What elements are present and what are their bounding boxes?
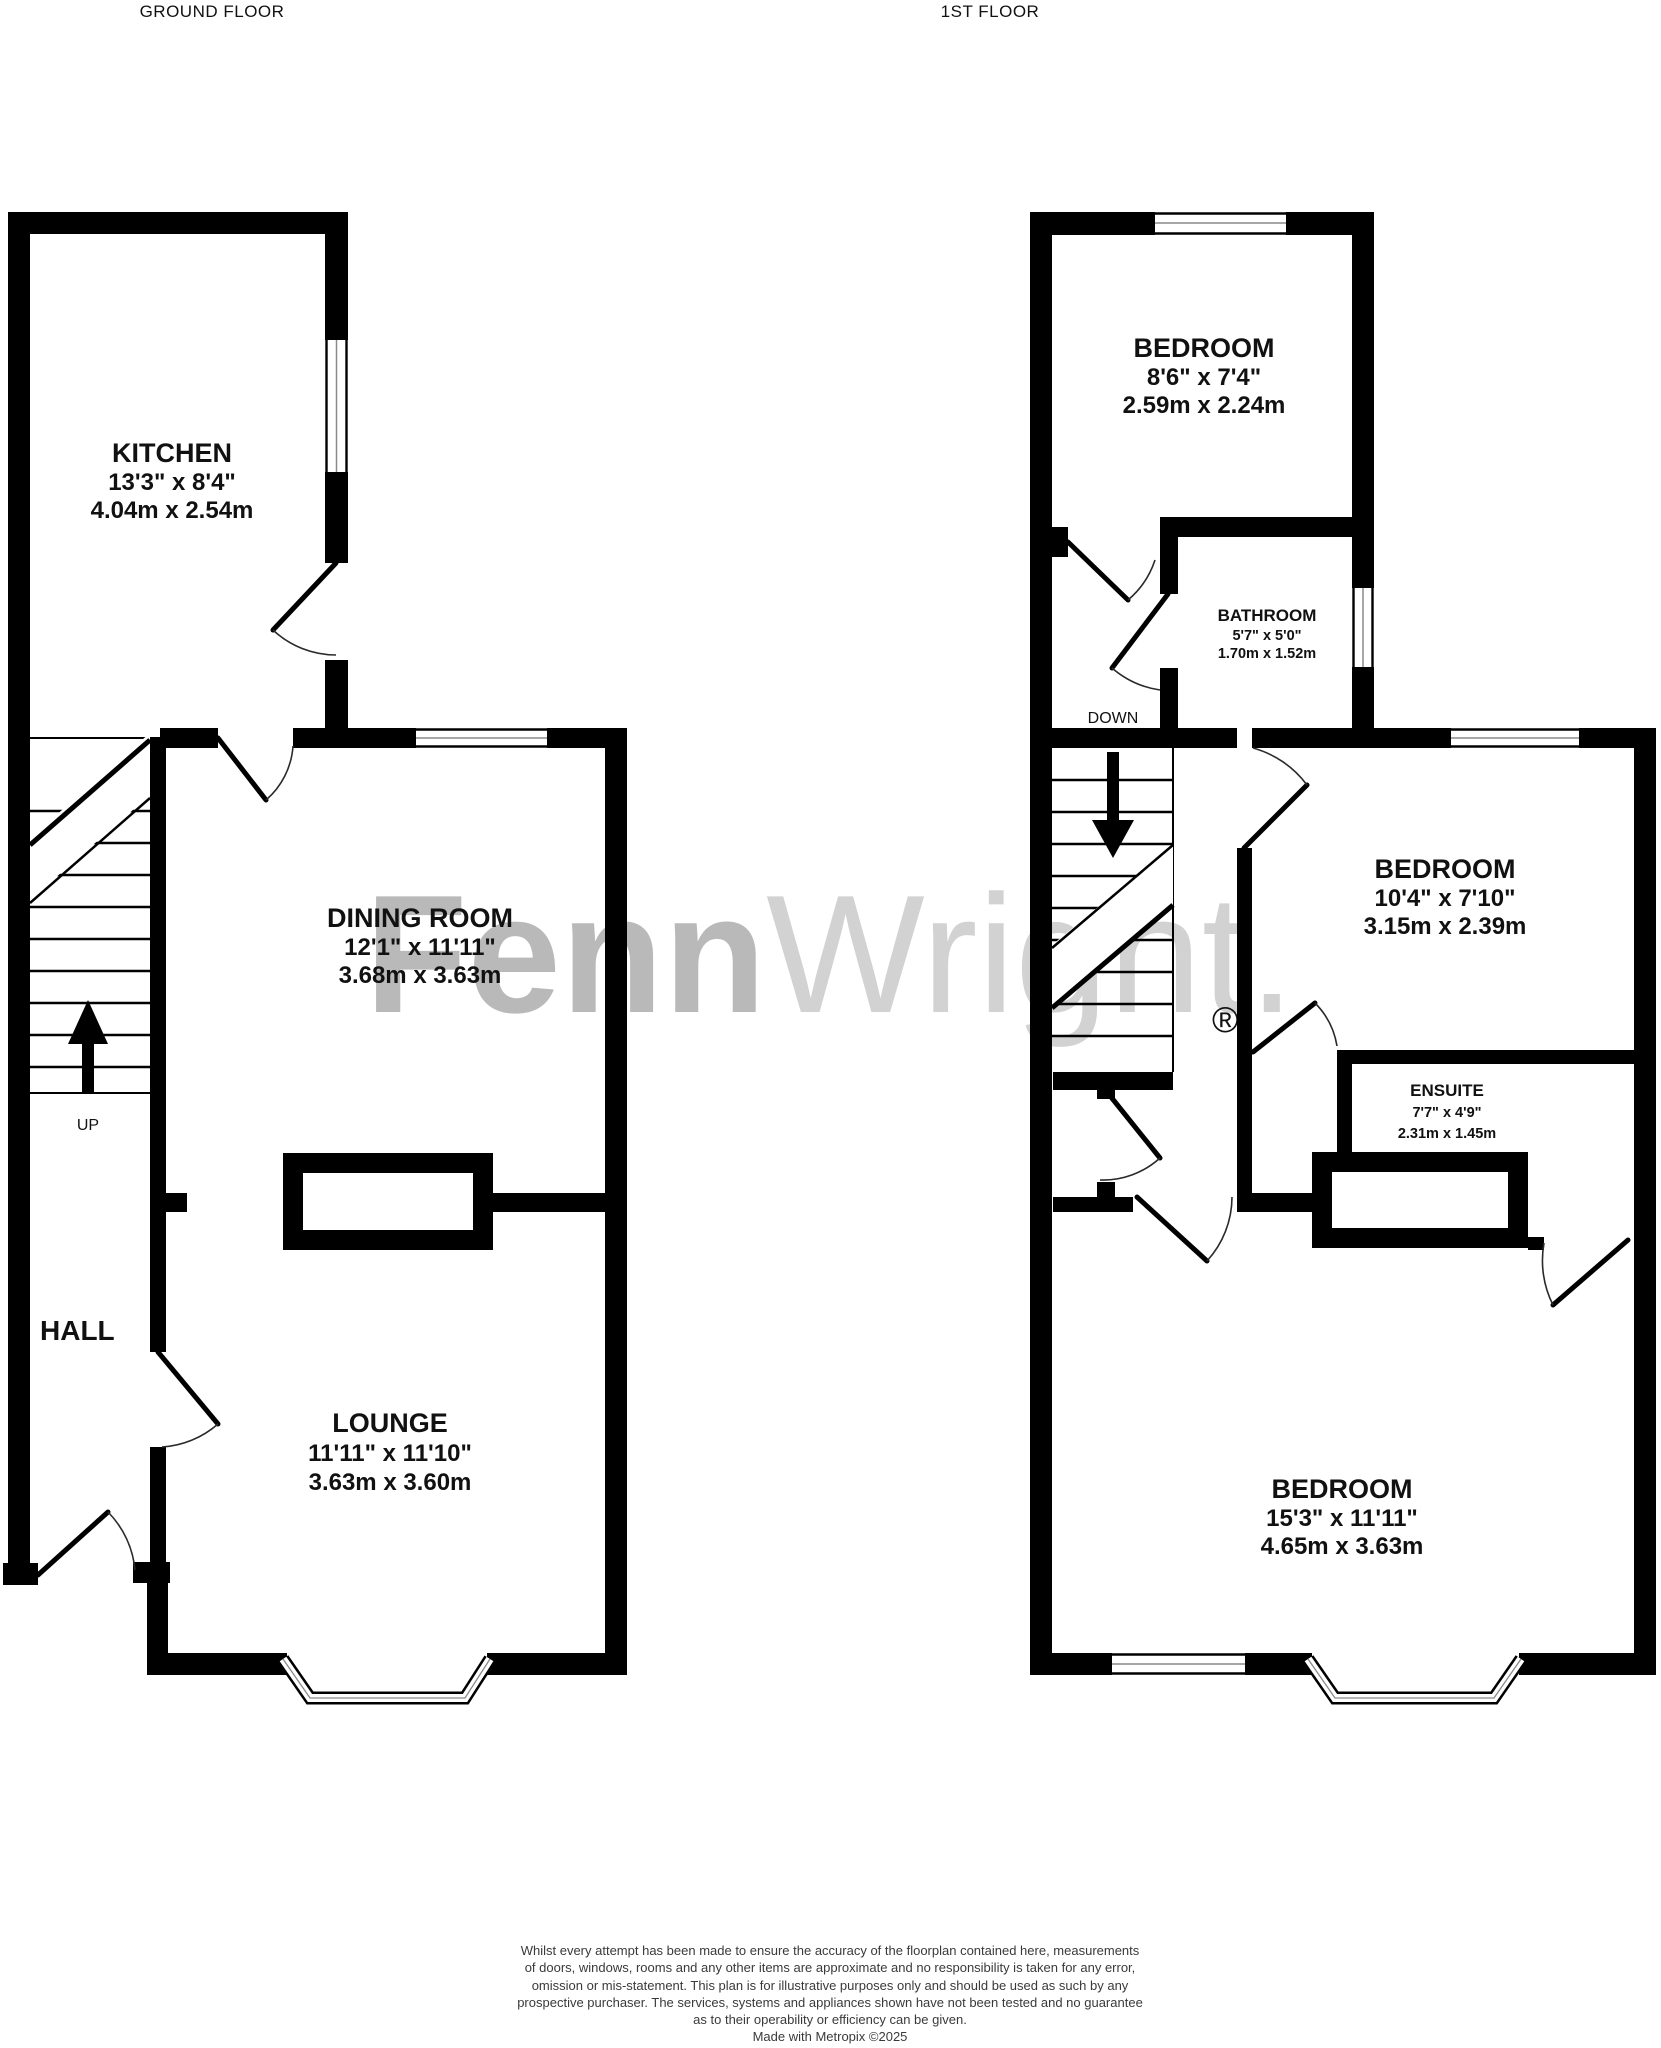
- metropix-credit: Made with Metropix ©2025: [753, 2029, 908, 2044]
- room-label-ensuite: ENSUITE 7'7" x 4'9" 2.31m x 1.45m: [1398, 1081, 1496, 1142]
- svg-text:4.04m x 2.54m: 4.04m x 2.54m: [91, 497, 254, 524]
- bedroom-front-flat-window: [1112, 1653, 1245, 1675]
- svg-text:ENSUITE: ENSUITE: [1410, 1081, 1484, 1100]
- disclaimer-line: prospective purchaser. The services, sys…: [517, 1995, 1143, 2010]
- bathroom-door: [1112, 594, 1168, 690]
- dining-room-window: [416, 728, 547, 748]
- ensuite-door: [1542, 1240, 1628, 1305]
- staircase-ground: [30, 733, 150, 1093]
- room-label-hall: HALL: [40, 1315, 115, 1346]
- svg-text:7'7" x 4'9": 7'7" x 4'9": [1412, 1105, 1481, 1121]
- disclaimer-line: omission or mis-statement. This plan is …: [532, 1978, 1129, 1993]
- room-label-kitchen: KITCHEN 13'3" x 8'4" 4.04m x 2.54m: [91, 438, 254, 524]
- up-arrow-icon: [68, 1000, 108, 1093]
- svg-text:DINING ROOM: DINING ROOM: [327, 903, 513, 933]
- bedroom-middle-door: [1244, 748, 1307, 848]
- svg-text:3.63m x 3.60m: 3.63m x 3.60m: [309, 1469, 472, 1496]
- svg-text:13'3" x 8'4": 13'3" x 8'4": [108, 469, 236, 496]
- stair-label-up: UP: [77, 1117, 99, 1134]
- lounge-door: [158, 1352, 218, 1447]
- svg-text:BEDROOM: BEDROOM: [1272, 1474, 1413, 1504]
- landing-door: [1100, 1092, 1160, 1180]
- svg-text:15'3" x 11'11": 15'3" x 11'11": [1266, 1505, 1418, 1532]
- svg-text:4.65m x 3.63m: 4.65m x 3.63m: [1261, 1533, 1424, 1560]
- registered-trademark-icon: ®: [1212, 999, 1239, 1040]
- stair-label-down: DOWN: [1088, 710, 1139, 727]
- bedroom-front-door: [1137, 1197, 1232, 1261]
- disclaimer-line: as to their operability or efficiency ca…: [693, 2012, 967, 2027]
- room-label-lounge: LOUNGE 11'11" x 11'10" 3.63m x 3.60m: [308, 1408, 472, 1496]
- down-arrow-icon: [1092, 752, 1134, 858]
- svg-text:BATHROOM: BATHROOM: [1218, 606, 1317, 625]
- floor-title-ground: GROUND FLOOR: [140, 2, 285, 21]
- svg-text:BEDROOM: BEDROOM: [1134, 333, 1275, 363]
- floor-title-first: 1ST FLOOR: [941, 2, 1040, 21]
- disclaimer-line: of doors, windows, rooms and any other i…: [525, 1960, 1136, 1975]
- svg-text:3.15m x 2.39m: 3.15m x 2.39m: [1364, 913, 1527, 940]
- bedroom-middle-window: [1451, 728, 1579, 748]
- svg-text:8'6" x 7'4": 8'6" x 7'4": [1147, 364, 1261, 391]
- bedroom-rear-window: [1155, 212, 1286, 235]
- room-label-bedroom-middle: BEDROOM 10'4" x 7'10" 3.15m x 2.39m: [1364, 854, 1527, 940]
- bedroom-rear-door: [1068, 542, 1155, 600]
- dining-room-door: [218, 738, 293, 800]
- kitchen-door: [273, 563, 336, 655]
- bedroom-front-bay-window: [1308, 1659, 1521, 1698]
- room-label-bathroom: BATHROOM 5'7" x 5'0" 1.70m x 1.52m: [1218, 606, 1317, 662]
- bathroom-window: [1352, 588, 1374, 667]
- svg-text:BEDROOM: BEDROOM: [1375, 854, 1516, 884]
- front-door: [38, 1512, 135, 1575]
- disclaimer: Whilst every attempt has been made to en…: [517, 1943, 1143, 2044]
- svg-text:12'1" x 11'11": 12'1" x 11'11": [344, 934, 496, 961]
- svg-text:3.68m x 3.63m: 3.68m x 3.63m: [339, 962, 502, 989]
- svg-text:LOUNGE: LOUNGE: [332, 1408, 448, 1438]
- svg-text:10'4" x 7'10": 10'4" x 7'10": [1375, 885, 1516, 912]
- room-label-bedroom-front: BEDROOM 15'3" x 11'11" 4.65m x 3.63m: [1261, 1474, 1424, 1560]
- svg-text:2.31m x 1.45m: 2.31m x 1.45m: [1398, 1126, 1496, 1142]
- svg-text:1.70m x 1.52m: 1.70m x 1.52m: [1218, 646, 1316, 662]
- floorplan-page: FennWright. ® GROUND FLOOR 1ST FLOOR: [0, 0, 1661, 2048]
- svg-text:5'7" x 5'0": 5'7" x 5'0": [1232, 628, 1301, 644]
- chimney-breast-ground: [283, 1153, 493, 1250]
- room-label-bedroom-rear: BEDROOM 8'6" x 7'4" 2.59m x 2.24m: [1123, 333, 1286, 419]
- svg-text:2.59m x 2.24m: 2.59m x 2.24m: [1123, 392, 1286, 419]
- room-label-dining-room: DINING ROOM 12'1" x 11'11" 3.68m x 3.63m: [327, 903, 513, 989]
- svg-text:KITCHEN: KITCHEN: [112, 438, 232, 468]
- kitchen-window: [325, 340, 348, 472]
- svg-text:11'11" x 11'10": 11'11" x 11'10": [308, 1440, 472, 1467]
- chimney-breast-first: [1312, 1152, 1528, 1248]
- lounge-bay-window: [283, 1659, 490, 1698]
- disclaimer-line: Whilst every attempt has been made to en…: [521, 1943, 1140, 1958]
